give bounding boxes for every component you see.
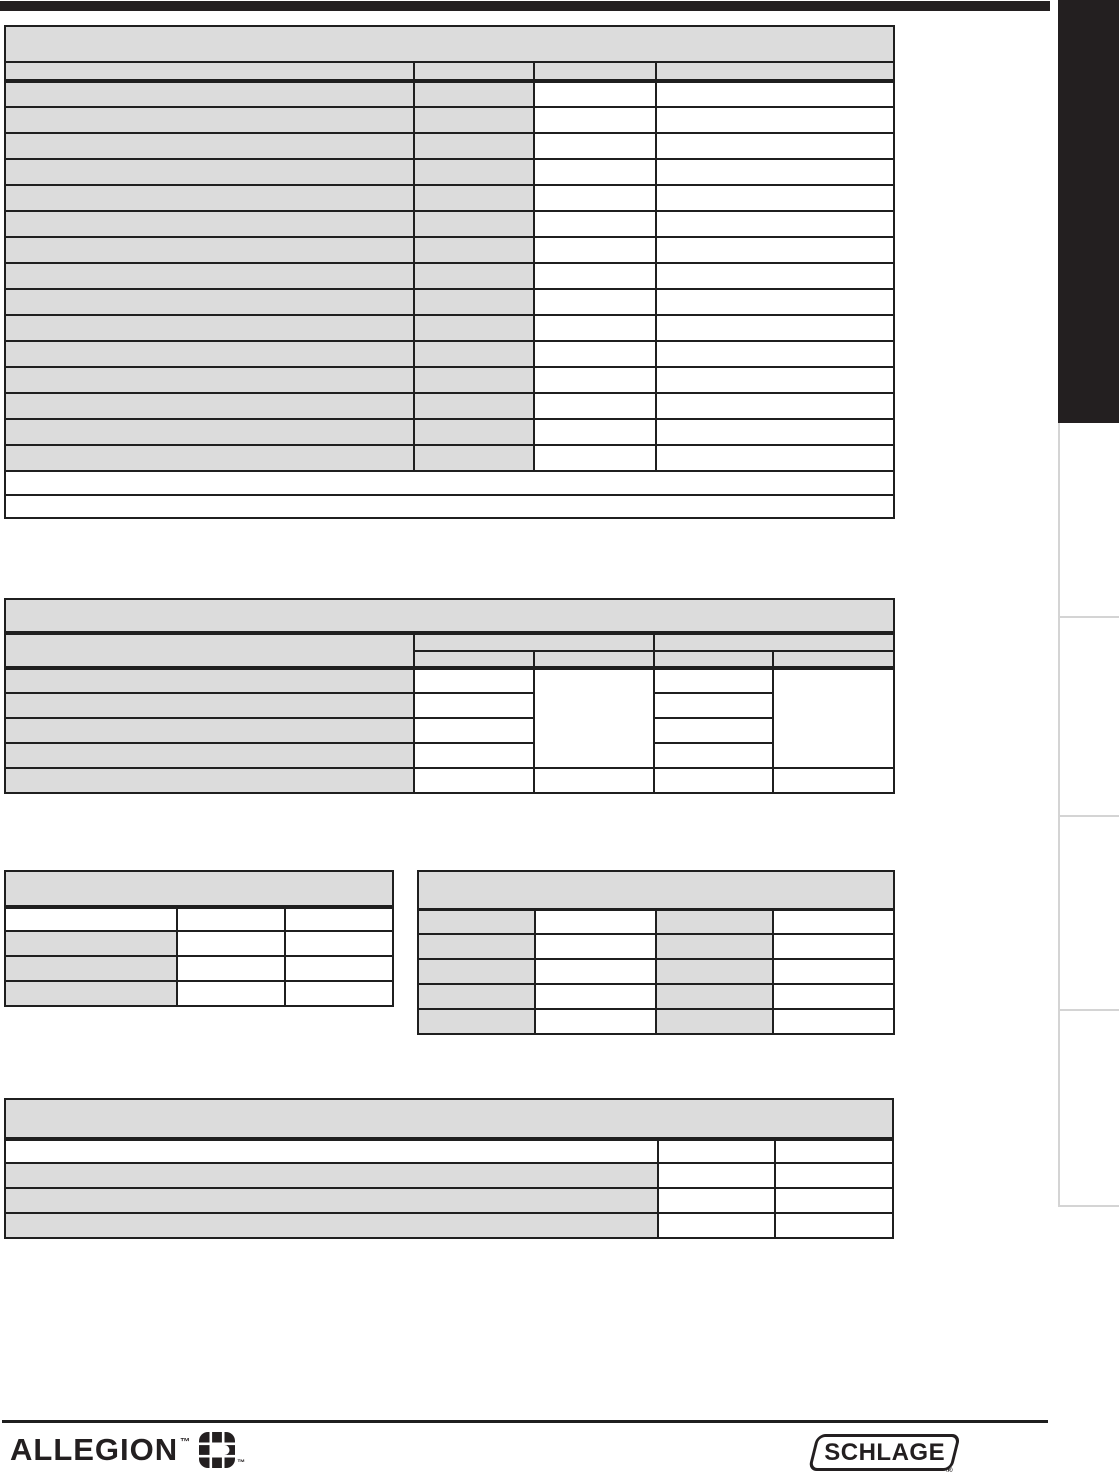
cell [534,651,654,668]
cell [534,107,656,133]
cell [534,81,656,107]
table-row [418,909,894,934]
cell [5,956,177,981]
cell [177,956,285,981]
cell [656,263,894,289]
cell [414,419,534,445]
cell [656,289,894,315]
cell [535,909,656,934]
cell [534,159,656,185]
cell [418,871,894,909]
cell [534,367,656,393]
cell [656,1009,773,1034]
cell [658,1188,775,1213]
cell [5,81,414,107]
cell [5,107,414,133]
table-3 [4,870,394,1007]
cell [535,934,656,959]
cell [775,1213,893,1238]
cell [534,237,656,263]
table-row [5,315,894,341]
table-1 [4,25,895,519]
table-row [5,211,894,237]
table-row [5,263,894,289]
cell [5,768,414,793]
table-row [418,1009,894,1034]
cell [285,931,393,956]
cell [5,1213,658,1238]
cell [775,1188,893,1213]
table-row [5,1163,893,1188]
section-tab [1060,817,1119,1011]
table-row [5,1188,893,1213]
table-3-title-band [5,871,393,907]
cell [658,1139,775,1163]
cell [5,419,414,445]
cell [414,211,534,237]
cell [285,956,393,981]
table-row [418,984,894,1009]
cell [5,367,414,393]
schlage-logo: SCHLAGE ® [808,1434,961,1471]
table-row [5,956,393,981]
cell [656,959,773,984]
table-row [5,1139,893,1163]
table-4-title-band [418,871,894,909]
cell [534,62,656,81]
cell [414,633,654,651]
cell [773,959,894,984]
cell [5,26,894,62]
cell [5,1163,658,1188]
cell [5,211,414,237]
cell [5,495,894,518]
cell [656,909,773,934]
cell [5,668,414,693]
cell [5,1099,893,1139]
cell [656,62,894,81]
cell [5,693,414,718]
table-row [5,981,393,1006]
table-row [5,445,894,471]
cell [534,393,656,419]
schlage-registered: ® [946,1465,953,1472]
cell [414,393,534,419]
section-tab-active [1058,0,1119,423]
cell [418,934,535,959]
table-2-title-band [5,599,894,633]
cell [656,107,894,133]
table-row [5,931,393,956]
cell [773,984,894,1009]
table-row [5,159,894,185]
table-2-header-row [5,633,894,651]
cell [414,81,534,107]
allegion-logo: ALLEGION ™ ™ [10,1431,245,1469]
cell [414,159,534,185]
cell [177,907,285,931]
cell [656,159,894,185]
cell [414,693,534,718]
cell [535,984,656,1009]
cell [285,907,393,931]
cell [654,718,773,743]
page: ALLEGION ™ ™ SCHLAGE ® [0,0,1119,1472]
cell [285,981,393,1006]
cell [414,768,534,793]
cell [5,718,414,743]
cell [414,107,534,133]
section-tab [1060,618,1119,817]
section-tab [1060,423,1119,618]
cell [5,159,414,185]
table-3-header-row [5,907,393,931]
cell [5,445,414,471]
cell [656,393,894,419]
cell [534,289,656,315]
cell [534,768,654,793]
table-row [5,693,894,718]
cell [535,959,656,984]
cell [5,1188,658,1213]
cell [535,1009,656,1034]
cell [5,907,177,931]
cell [414,367,534,393]
cell [414,289,534,315]
table-5-title-band [5,1099,893,1139]
allegion-emblem-trademark: ™ [237,1458,245,1467]
table-row [5,668,894,693]
table-row [5,743,894,768]
cell [773,668,894,768]
cell [656,315,894,341]
cell [656,211,894,237]
cell [414,315,534,341]
table-row [5,718,894,743]
cell [414,651,534,668]
table-footnote-row [5,471,894,495]
cell [414,445,534,471]
cell [656,445,894,471]
cell [654,743,773,768]
cell [534,445,656,471]
cell [534,419,656,445]
table-5 [4,1098,894,1239]
cell [418,984,535,1009]
table-row [418,934,894,959]
cell [418,959,535,984]
cell [534,185,656,211]
table-footnote-row [5,495,894,518]
cell [656,185,894,211]
cell [656,367,894,393]
cell [773,934,894,959]
cell [5,1139,658,1163]
cell [414,185,534,211]
cell [773,768,894,793]
cell [654,651,773,668]
cell [5,133,414,159]
cell [5,633,414,668]
table-row [5,81,894,107]
cell [534,211,656,237]
cell [414,263,534,289]
cell [773,651,894,668]
table-1-title-band [5,26,894,62]
cell [5,185,414,211]
cell [658,1163,775,1188]
section-tab [1060,1011,1119,1207]
cell [654,668,773,693]
table-4 [417,870,895,1035]
table-row [5,419,894,445]
table-row [5,1213,893,1238]
cell [656,934,773,959]
cell [177,931,285,956]
cell [775,1139,893,1163]
footer-rule [2,1420,1048,1423]
cell [534,263,656,289]
cell [5,393,414,419]
cell [5,62,414,81]
cell [658,1213,775,1238]
cell [656,133,894,159]
cell [5,237,414,263]
cell [5,471,894,495]
allegion-emblem-icon [198,1431,236,1469]
cell [5,871,393,907]
cell [414,237,534,263]
cell [656,341,894,367]
cell [656,237,894,263]
table-row [5,341,894,367]
table-row [5,367,894,393]
table-row [5,185,894,211]
table-1-header-row [5,62,894,81]
cell [534,668,654,768]
cell [5,315,414,341]
cell [414,743,534,768]
cell [414,718,534,743]
table-row [5,768,894,793]
cell [414,133,534,159]
table-row [5,289,894,315]
cell [418,909,535,934]
cell [418,1009,535,1034]
table-row [5,133,894,159]
table-2 [4,598,895,794]
cell [534,315,656,341]
allegion-trademark: ™ [180,1437,190,1448]
table-row [5,237,894,263]
cell [654,633,894,651]
cell [414,341,534,367]
cell [656,81,894,107]
cell [5,981,177,1006]
cell [775,1163,893,1188]
schlage-wordmark: SCHLAGE [824,1439,945,1467]
cell [773,1009,894,1034]
cell [656,419,894,445]
cell [414,62,534,81]
table-row [5,107,894,133]
cell [177,981,285,1006]
cell [5,743,414,768]
cell [5,931,177,956]
top-bar [0,1,1050,11]
cell [534,341,656,367]
cell [654,768,773,793]
allegion-wordmark: ALLEGION [10,1432,178,1468]
cell [5,341,414,367]
cell [5,289,414,315]
cell [654,693,773,718]
cell [656,984,773,1009]
cell [773,909,894,934]
table-row [5,393,894,419]
section-tab-strip [1058,423,1119,1207]
cell [5,599,894,633]
table-row [418,959,894,984]
cell [5,263,414,289]
cell [414,668,534,693]
cell [534,133,656,159]
